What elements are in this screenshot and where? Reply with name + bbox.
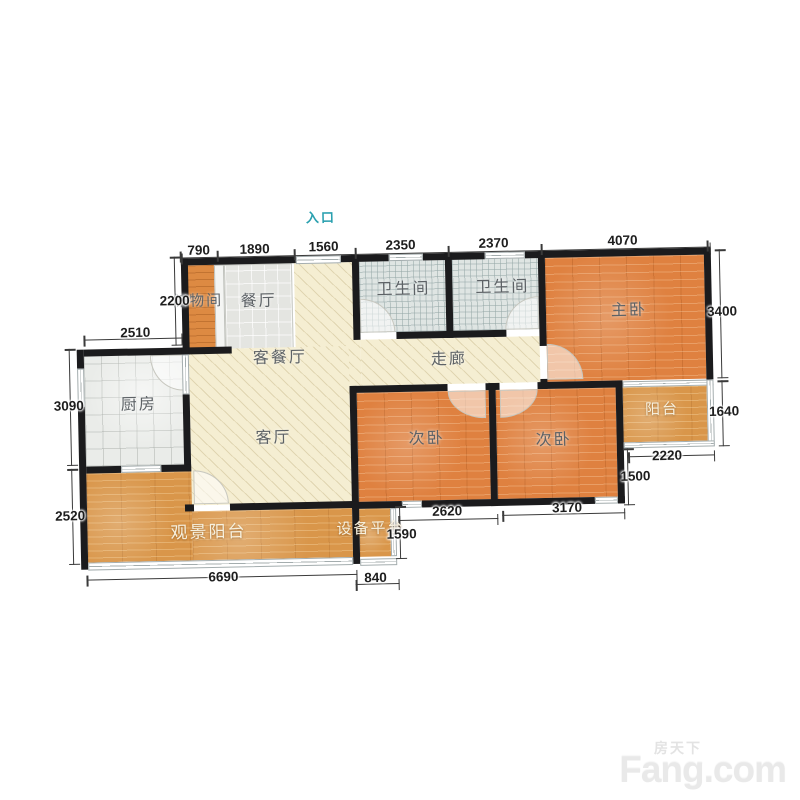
dim-top-1: 1890 (239, 241, 269, 257)
watermark-cn: 房天下 (654, 741, 702, 755)
dim-right-1: 1640 (709, 403, 739, 419)
dim-top-5: 4070 (607, 232, 637, 248)
dimension-tick (294, 249, 296, 260)
dim-top-4: 2370 (478, 235, 508, 251)
wall-segment (423, 252, 485, 260)
wall-segment (77, 350, 84, 369)
bedroom2-label: 次卧 (535, 425, 572, 450)
bathroom1-label: 卫生间 (376, 274, 431, 299)
wall-segment (618, 496, 625, 503)
entrance-label: 入口 (306, 207, 336, 227)
living-label: 客厅 (255, 423, 292, 448)
window (182, 354, 190, 394)
window (389, 253, 423, 261)
bedroom1-label: 次卧 (408, 424, 445, 449)
wall-segment (161, 464, 191, 472)
dim-top-0: 790 (187, 242, 210, 257)
window (595, 496, 618, 503)
balcony-label: 阳台 (645, 398, 679, 420)
kitchen-label: 厨房 (121, 390, 158, 415)
window (296, 255, 341, 264)
dim-top-3: 2350 (385, 237, 415, 253)
dim-inner-4: 1500 (620, 468, 650, 484)
floorplan-page: 储物间 餐厅 客餐厅 客厅 厨房 走廊 卫生间 卫生间 主卧 次卧 次卧 阳台 … (0, 0, 800, 800)
watermark-logo: Fang.com (619, 749, 786, 790)
living-dining-label: 客餐厅 (253, 343, 308, 368)
dimension-tick (541, 244, 543, 255)
dimension-tick (217, 251, 219, 262)
dim-left-3: 2520 (55, 508, 85, 524)
dim-inner-1: 2620 (432, 503, 462, 519)
corridor-label: 走廊 (431, 345, 468, 370)
dim-right-0: 3400 (707, 303, 737, 319)
dim-left-0: 2200 (159, 293, 189, 309)
dining-label: 餐厅 (240, 287, 277, 312)
wall-segment (185, 504, 194, 511)
window (485, 251, 525, 259)
wall-segment (341, 254, 389, 262)
master-bedroom-label: 主卧 (611, 296, 648, 321)
dimension-tick (448, 246, 450, 257)
room-view-balcony-left (86, 471, 193, 562)
dim-left-2: 3090 (54, 398, 84, 414)
dim-inner-0: 1590 (386, 526, 416, 542)
dim-inner-2: 3170 (552, 500, 582, 516)
dimension-tick (707, 241, 709, 252)
watermark: 房天下 Fang.com (619, 751, 786, 788)
wall-segment (86, 466, 121, 474)
dim-bottom-1: 840 (364, 570, 387, 585)
view-balcony-label: 观景阳台 (170, 517, 247, 544)
bathroom2-label: 卫生间 (475, 272, 530, 297)
floor-plan: 储物间 餐厅 客餐厅 客厅 厨房 走廊 卫生间 卫生间 主卧 次卧 次卧 阳台 … (0, 0, 800, 800)
window (360, 558, 397, 566)
dimension-tick (180, 252, 182, 263)
window (121, 465, 161, 473)
dim-bottom-0: 6690 (208, 569, 238, 585)
dimension-tick (355, 248, 357, 259)
dim-left-1: 2510 (120, 325, 150, 341)
dim-top-2: 1560 (308, 239, 338, 255)
dim-inner-3: 2220 (652, 448, 682, 464)
